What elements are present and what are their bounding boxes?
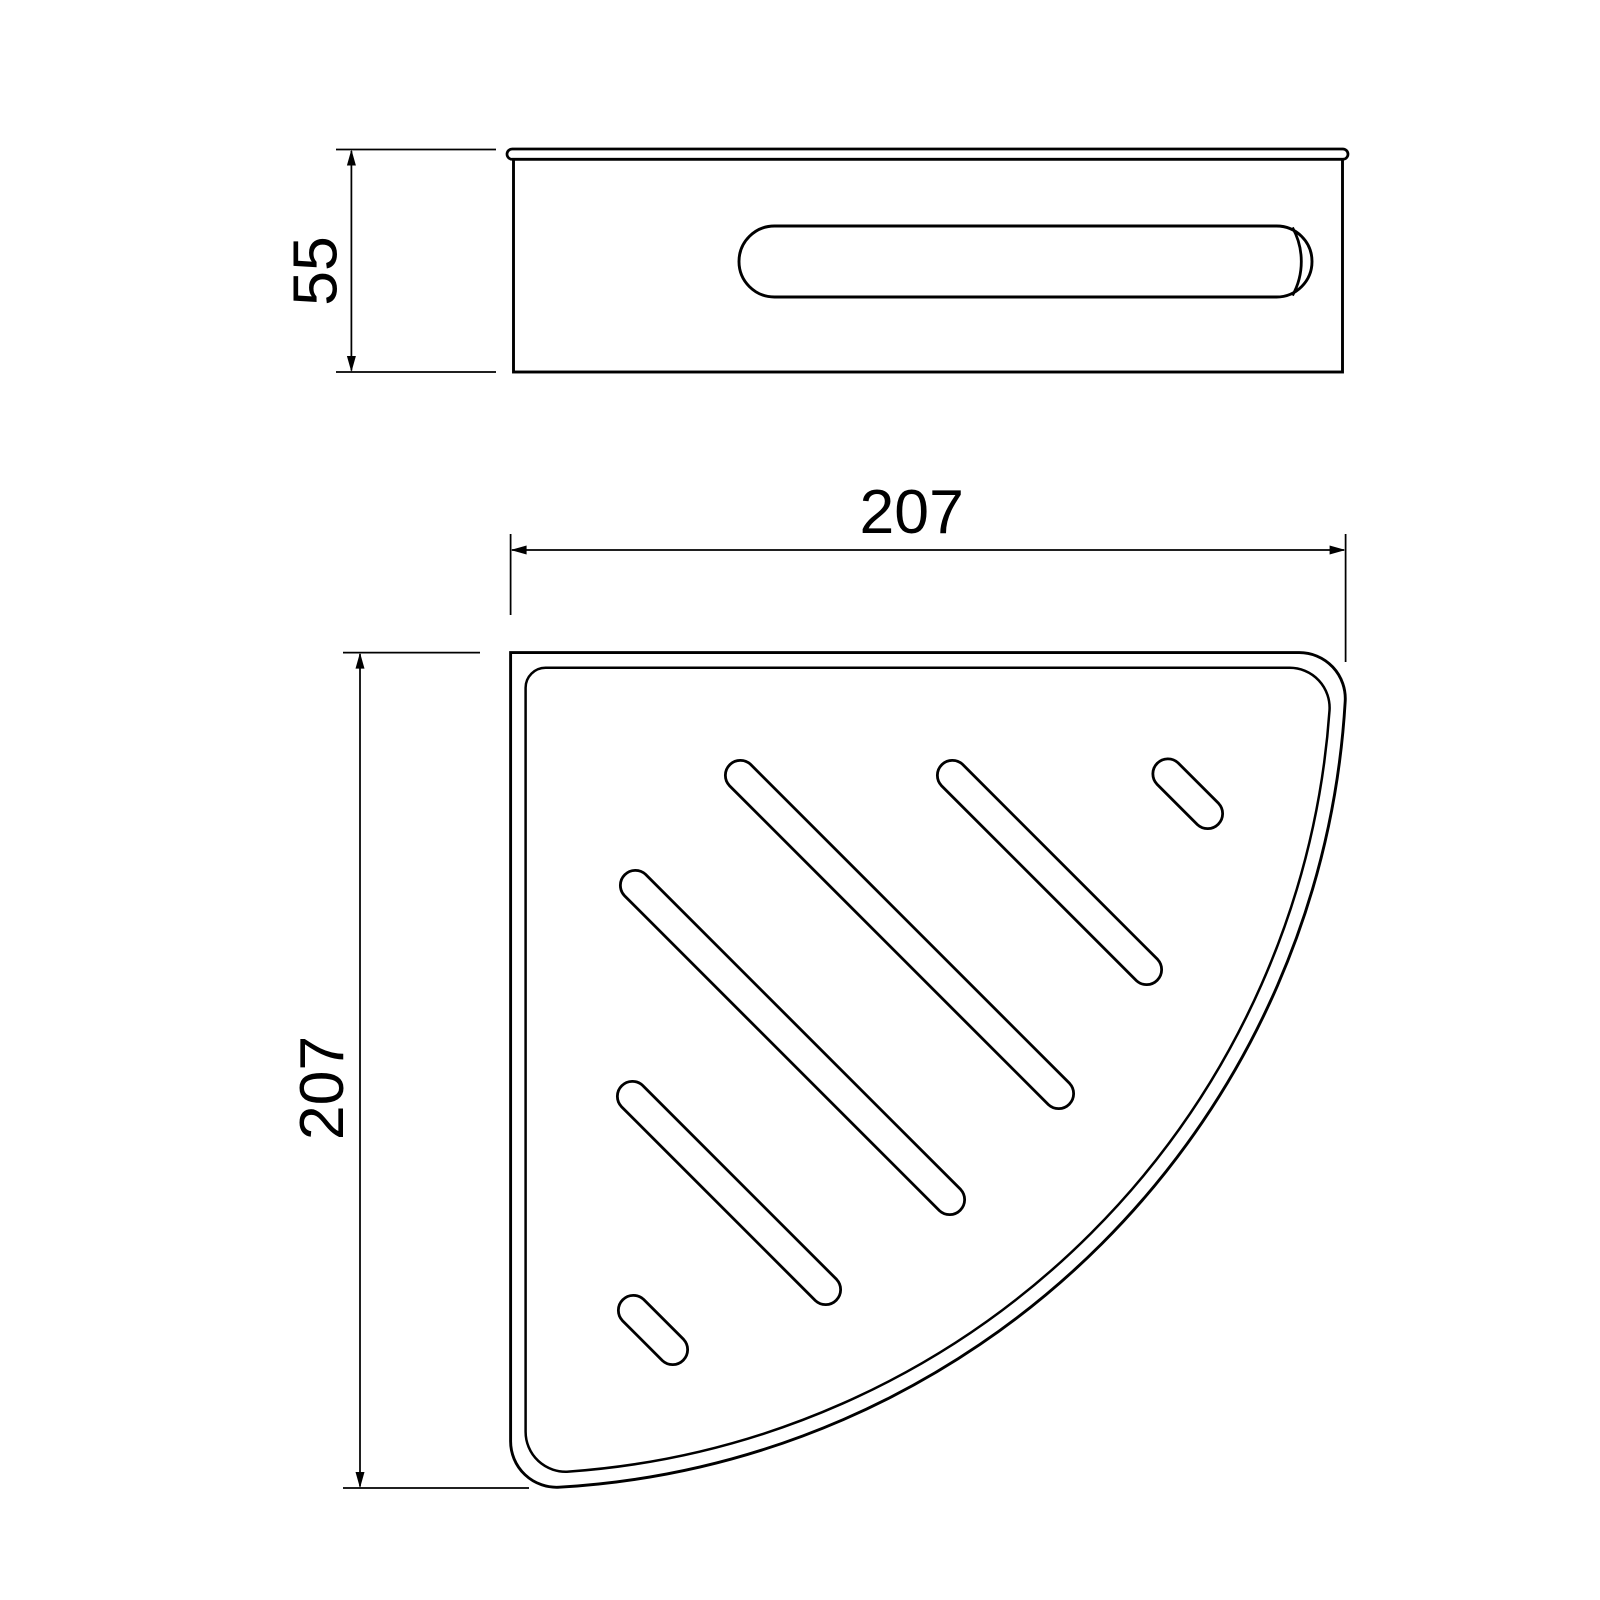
svg-text:55: 55 — [281, 236, 351, 306]
svg-text:207: 207 — [287, 1036, 357, 1140]
svg-text:207: 207 — [860, 477, 964, 547]
